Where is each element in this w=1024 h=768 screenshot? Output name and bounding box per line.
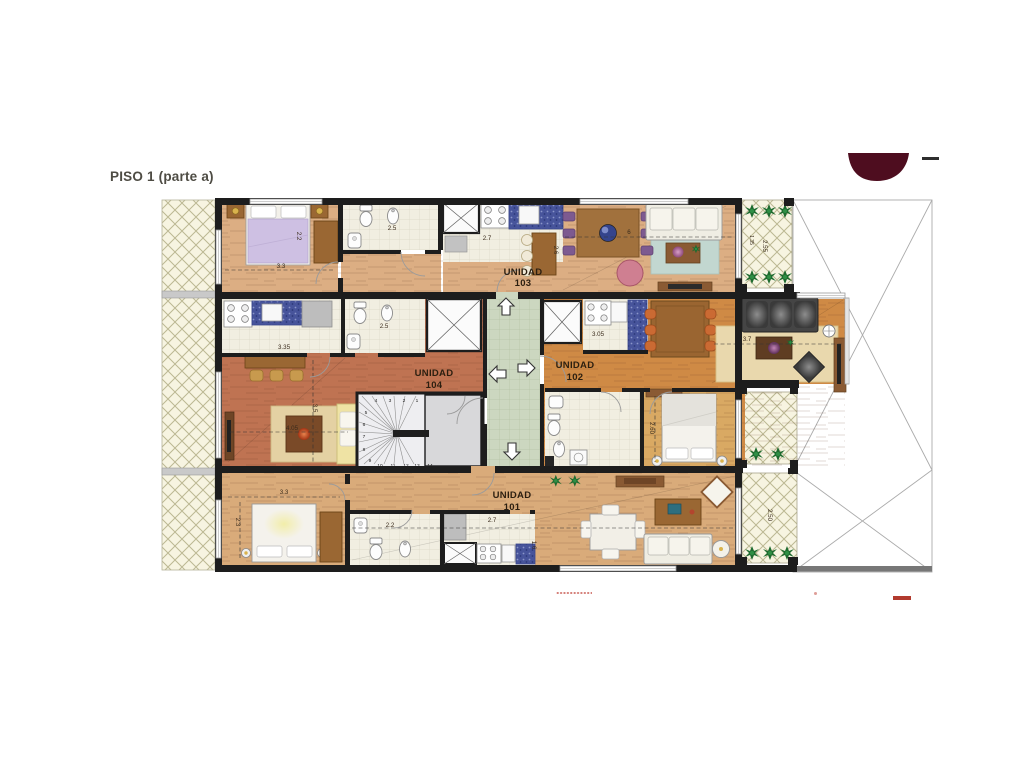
- chair-icon: [563, 212, 575, 221]
- svg-text:5: 5: [365, 410, 368, 416]
- unit-104-number: 104: [426, 380, 443, 391]
- svg-text:3.35: 3.35: [278, 344, 291, 351]
- svg-text:3.5: 3.5: [311, 404, 318, 413]
- svg-text:7: 7: [363, 434, 366, 440]
- landing: [425, 395, 481, 466]
- svg-text:3.3: 3.3: [280, 489, 289, 496]
- svg-text:3.3: 3.3: [277, 263, 286, 270]
- bidet-icon: [400, 541, 411, 557]
- floorplan-page: PISO 1 (parte a): [0, 0, 1024, 768]
- dining-table: [590, 514, 636, 550]
- unit-102-dining: [645, 301, 716, 357]
- kitchen-sink-icon: [262, 304, 282, 321]
- svg-text:3.05: 3.05: [592, 331, 605, 338]
- toilet-icon: [370, 538, 382, 560]
- chair-icon: [563, 229, 575, 238]
- svg-text:2.7: 2.7: [488, 517, 497, 524]
- svg-text:2.60: 2.60: [648, 422, 655, 435]
- door-gap: [471, 466, 495, 473]
- watermark-dot: [814, 592, 817, 595]
- svg-text:2.7: 2.7: [483, 235, 492, 242]
- wardrobe: [320, 512, 342, 562]
- decor-bowl: [298, 428, 310, 440]
- chair-icon: [645, 309, 656, 319]
- unit-101-label: UNIDAD: [493, 490, 532, 501]
- watermark-dash: [893, 596, 911, 600]
- shaft-2: [543, 301, 581, 343]
- stool-icon: [522, 235, 533, 246]
- stove-icon: [224, 301, 252, 327]
- floor-plan: 1 2 3 4 5 6 7 8 9 10 11 12 13 14: [0, 0, 1024, 768]
- fridge: [302, 301, 332, 327]
- unit-103-number: 103: [515, 278, 532, 289]
- kitchen-sink-icon: [519, 206, 539, 224]
- washer-icon: [570, 450, 587, 465]
- bidet-icon: [388, 208, 399, 224]
- unit-102-number: 102: [567, 372, 584, 383]
- svg-text:8: 8: [363, 447, 366, 453]
- chair-icon: [641, 246, 653, 255]
- chair-icon: [645, 341, 656, 351]
- svg-text:2.6: 2.6: [552, 246, 559, 255]
- laptop-icon: [668, 504, 681, 514]
- chair-icon: [635, 521, 645, 538]
- toilet-icon: [548, 414, 560, 436]
- svg-text:2.2: 2.2: [386, 522, 395, 529]
- svg-text:6: 6: [627, 229, 631, 236]
- svg-text:3: 3: [389, 398, 392, 404]
- kitchen-sink-icon: [611, 302, 627, 322]
- chair-icon: [581, 521, 591, 538]
- chair-icon: [602, 549, 619, 559]
- stool-icon: [290, 370, 303, 381]
- fridge: [444, 514, 466, 540]
- wardrobe: [314, 221, 338, 263]
- stool-icon: [250, 370, 263, 381]
- toilet-icon: [360, 205, 372, 227]
- bar-counter: [245, 356, 305, 368]
- dining-table: [651, 301, 709, 357]
- door-gap: [496, 292, 518, 299]
- svg-text:9: 9: [369, 458, 372, 464]
- svg-text:1.35: 1.35: [748, 235, 754, 245]
- svg-text:2.50: 2.50: [766, 509, 773, 522]
- svg-text:6: 6: [363, 422, 366, 428]
- cabinet: [545, 456, 554, 466]
- toilet-icon: [354, 302, 366, 324]
- svg-text:2.2: 2.2: [295, 232, 302, 241]
- svg-text:2.5: 2.5: [380, 323, 389, 330]
- unit-103-label: UNIDAD: [504, 267, 543, 278]
- chair-icon: [705, 341, 716, 351]
- pouf: [617, 260, 643, 286]
- handrail: [393, 430, 429, 437]
- chair-icon: [645, 325, 656, 335]
- decor-ball: [673, 247, 684, 258]
- unit-101-number: 101: [504, 502, 521, 513]
- unit-104-kitchen: [224, 301, 332, 327]
- svg-text:2.3: 2.3: [234, 518, 241, 527]
- bidet-icon: [382, 305, 393, 321]
- stool-icon: [270, 370, 283, 381]
- svg-text:2.55: 2.55: [761, 240, 768, 253]
- unit-104-label: UNIDAD: [415, 368, 454, 379]
- balcony-left: [162, 200, 215, 570]
- hallway-floor: [487, 299, 540, 466]
- chair-icon: [705, 325, 716, 335]
- svg-text:4: 4: [375, 398, 378, 404]
- kitchen-sink-icon: [502, 545, 515, 562]
- svg-text:1.6: 1.6: [530, 541, 537, 550]
- stove-icon: [477, 544, 501, 563]
- chair-icon: [602, 505, 619, 515]
- counter: [628, 300, 647, 350]
- chair-icon: [705, 309, 716, 319]
- svg-text:1: 1: [416, 398, 419, 404]
- unit-102-label: UNIDAD: [556, 360, 595, 371]
- sink-icon: [549, 396, 563, 408]
- bidet-icon: [554, 441, 565, 457]
- svg-text:3.7: 3.7: [743, 336, 752, 343]
- svg-text:4.05: 4.05: [286, 425, 299, 432]
- chair-icon: [563, 246, 575, 255]
- svg-text:2.5: 2.5: [388, 225, 397, 232]
- stool-icon: [522, 251, 533, 262]
- shaft-elevator: [427, 299, 481, 351]
- svg-text:2: 2: [403, 398, 406, 404]
- watermark-dots: [556, 591, 592, 595]
- staircase: 1 2 3 4 5 6 7 8 9 10 11 12 13 14: [357, 393, 483, 469]
